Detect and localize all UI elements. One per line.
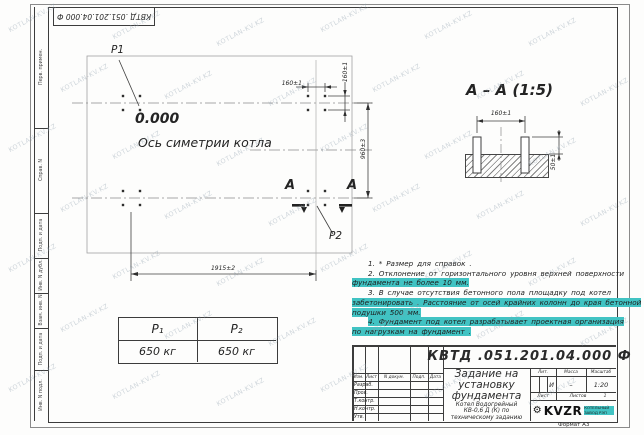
mass-label: Масса [556,369,586,376]
col-podp: Подп. [410,374,428,381]
note-line: 3. В случае отсутствия бетонного пола пл… [352,288,618,298]
note-line: по нагрузкам на фундамент . [352,327,618,337]
elevation-label: 0.000 [135,111,179,127]
load-point-p1-label: P1 [111,44,124,56]
note-line: 4. Фундамент под котел разрабатывает про… [352,317,618,327]
dim-plan-width: 1915±2 [203,265,243,272]
load-table-value-p2: 650 кг [197,342,276,360]
doc-number: КВТД .051.201.04.000 Ф [443,345,616,368]
note-line: подушки 500 мм. [352,308,618,318]
dim-plan-height: 960±3 [359,134,367,164]
col-list: Лист [365,374,378,381]
load-table-header-p2: P₂ [197,320,276,338]
notes-list: 1. * Размер для справок .2. Отклонение о… [352,259,618,337]
gear-icon: ⚙ [533,405,542,416]
sheets-label: Листов [560,393,596,400]
format-label: Формат А3 [558,422,589,428]
note-line: 2. Отклонение от горизонтального уровня … [352,269,618,279]
dim-section-spacing: 160±1 [484,110,518,117]
col-izm: Изм. [352,374,365,381]
dim-bolt-spacing-v: 160±1 [341,57,349,87]
doc-title: Задание на установку фундамента [444,369,529,402]
load-table-header-p1: P₁ [118,320,197,338]
section-letter-left: А [285,178,295,193]
symmetry-axis-label: Ось симетрии котла [138,135,272,150]
drawing-sheet: { "watermark": { "text": "KOTLAN-KV.KZ" … [0,0,644,430]
role-tkontr: Т.контр. [354,399,375,404]
section-title: А – А (1:5) [466,81,553,99]
col-ndocum: N докум. [378,374,410,381]
section-letter-right: А [347,178,357,193]
sheets-value: 1 [598,393,612,400]
role-prov: Пров. [354,391,368,396]
col-data: Дата [428,374,443,381]
doc-subtitle: Котел Водогрейный КВ-0,6 Д (К) по технич… [446,402,527,421]
logo-subtext: КОТЕЛЬНЫЙ ЗАВОД РЭП [584,406,614,415]
note-line: 1. * Размер для справок . [352,259,618,269]
role-razrab: Разраб. [354,383,373,388]
note-line: фундамента не более 10 мм. [352,278,618,288]
logo-area: ⚙ KVZR КОТЕЛЬНЫЙ ЗАВОД РЭП [532,401,615,420]
load-table-value-p1: 650 кг [118,342,197,360]
scale-label: Масштаб [586,369,616,376]
load-point-p2-label: P2 [329,230,342,242]
dim-bolt-spacing-h: 160±1 [268,80,302,87]
logo-text: KVZR [544,404,583,418]
role-utv: Утв. [354,415,364,420]
lit-label: Лит. [530,369,556,376]
sheet-label: Лист [530,393,556,400]
mass-value: – [556,377,586,392]
note-line: забетонировать . Расстояние от осей край… [352,298,618,308]
scale-value: 1:20 [586,377,616,392]
lit-value: И [547,377,556,392]
role-nkontr: Н.контр. [354,407,375,412]
dim-bolt-protrusion: 50±1 [549,147,557,177]
